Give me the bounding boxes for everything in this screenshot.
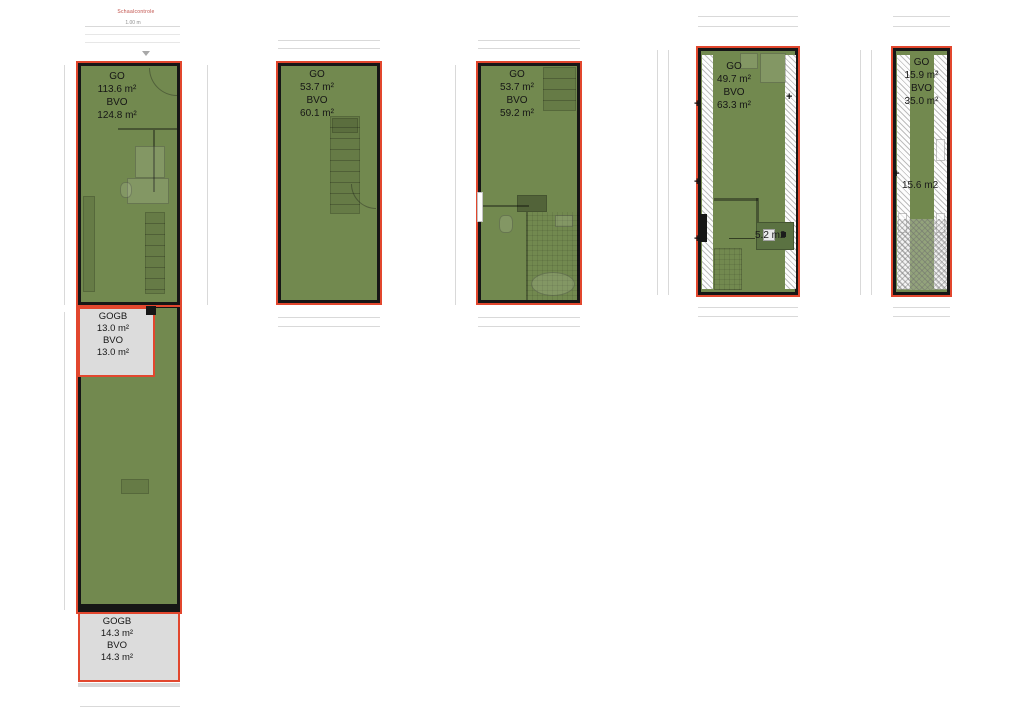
- dimension-line: [871, 50, 872, 295]
- area-label-plan-2: GO 53.7 m² BVO 60.1 m²: [282, 68, 352, 120]
- area-annotation: 5.2 m2: [755, 230, 786, 241]
- roof-window: [936, 139, 945, 161]
- shower-tiles: [714, 248, 742, 290]
- dimension-line: [698, 316, 798, 317]
- go-value: 53.7 m²: [282, 81, 352, 94]
- area-label-plan-1: GO 113.6 m² BVO 124.8 m²: [82, 70, 152, 122]
- dimension-line: [278, 48, 380, 49]
- bathroom-fixture: [135, 146, 165, 178]
- gogb-value: 13.0 m²: [82, 323, 144, 335]
- plus-marker: +: [893, 169, 899, 179]
- dimension-line: [478, 48, 580, 49]
- scale-check-title: Schaalcontrole: [104, 9, 168, 15]
- go-label: GO: [82, 70, 152, 83]
- bvo-value: 59.2 m²: [482, 107, 552, 120]
- toilet: [499, 215, 513, 233]
- interior-wall: [118, 128, 177, 130]
- wardrobe: [145, 212, 165, 294]
- bvo-label: BVO: [82, 96, 152, 109]
- go-label: GO: [702, 60, 766, 73]
- plus-marker: +: [786, 92, 792, 102]
- door-panel: [701, 214, 707, 242]
- dimension-line: [85, 42, 180, 43]
- dimension-line: [698, 16, 798, 17]
- area-annotation: 15.6 m2: [902, 180, 938, 191]
- bvo-value: 124.8 m²: [82, 109, 152, 122]
- doorway: [517, 195, 547, 212]
- dimension-line: [64, 312, 65, 610]
- wall-segment: [146, 306, 156, 315]
- area-label-plan-3: GO 53.7 m² BVO 59.2 m²: [482, 68, 552, 120]
- plus-marker: +: [694, 234, 700, 244]
- kitchen-counter: [83, 196, 95, 292]
- bvo-value: 13.0 m²: [82, 347, 144, 359]
- area-label-plan-4: GO 49.7 m² BVO 63.3 m²: [702, 60, 766, 112]
- dimension-line: [80, 706, 180, 707]
- bvo-label: BVO: [894, 82, 949, 95]
- gogb-value: 14.3 m²: [84, 628, 150, 640]
- bvo-value: 60.1 m²: [282, 107, 352, 120]
- dimension-line: [657, 50, 658, 295]
- dimension-line: [278, 317, 380, 318]
- gogb-label: GOGB: [82, 311, 144, 323]
- go-label: GO: [282, 68, 352, 81]
- bvo-label: BVO: [702, 86, 766, 99]
- go-label: GO: [482, 68, 552, 81]
- bvo-label: BVO: [84, 640, 150, 652]
- bathtub: [531, 272, 575, 296]
- dimension-line: [860, 50, 861, 295]
- area-label-gogb-2: GOGB 14.3 m² BVO 14.3 m²: [84, 616, 150, 664]
- dimension-line: [278, 40, 380, 41]
- bathroom-fixture: [127, 178, 169, 204]
- dimension-line: [478, 40, 580, 41]
- dimension-line: [668, 50, 669, 295]
- bvo-label: BVO: [282, 94, 352, 107]
- dimension-line: [893, 307, 950, 308]
- bvo-value: 63.3 m²: [702, 99, 766, 112]
- north-marker-icon: [142, 51, 150, 56]
- plus-marker: +: [694, 177, 700, 187]
- dimension-line: [278, 326, 380, 327]
- window-marker: [477, 192, 483, 222]
- interior-wall: [714, 198, 758, 201]
- dimension-line: [64, 65, 65, 305]
- stair-landing: [332, 118, 358, 133]
- bvo-label: BVO: [482, 94, 552, 107]
- bvo-value: 35.0 m²: [894, 95, 949, 108]
- bvo-label: BVO: [82, 335, 144, 347]
- restricted-area-crosshatch: [897, 219, 947, 290]
- leader-line: [729, 238, 755, 239]
- dimension-line: [893, 16, 950, 17]
- go-value: 53.7 m²: [482, 81, 552, 94]
- dimension-line: [893, 26, 950, 27]
- dimension-line: [455, 65, 456, 305]
- dimension-line: [478, 317, 580, 318]
- go-label: GO: [894, 56, 949, 69]
- dimension-line: [698, 26, 798, 27]
- garden-shed: [121, 479, 149, 494]
- toilet: [120, 182, 132, 198]
- plan-shadow: [78, 683, 180, 687]
- scale-bar-line: [85, 26, 180, 27]
- dimension-line: [698, 307, 798, 308]
- area-label-plan-5: GO 15.9 m² BVO 35.0 m²: [894, 56, 949, 108]
- go-value: 49.7 m²: [702, 73, 766, 86]
- dimension-line: [207, 65, 208, 305]
- floorplan-sheet: Schaalcontrole 1.00 m GO 113.: [0, 0, 1024, 724]
- gogb-label: GOGB: [84, 616, 150, 628]
- plus-marker: +: [694, 99, 700, 109]
- area-label-gogb-1: GOGB 13.0 m² BVO 13.0 m²: [82, 311, 144, 359]
- dimension-line: [85, 34, 180, 35]
- dimension-line: [478, 326, 580, 327]
- door-arc: [149, 68, 177, 96]
- sink: [555, 215, 573, 227]
- go-value: 113.6 m²: [82, 83, 152, 96]
- bvo-value: 14.3 m²: [84, 652, 150, 664]
- dimension-line: [893, 316, 950, 317]
- go-value: 15.9 m²: [894, 69, 949, 82]
